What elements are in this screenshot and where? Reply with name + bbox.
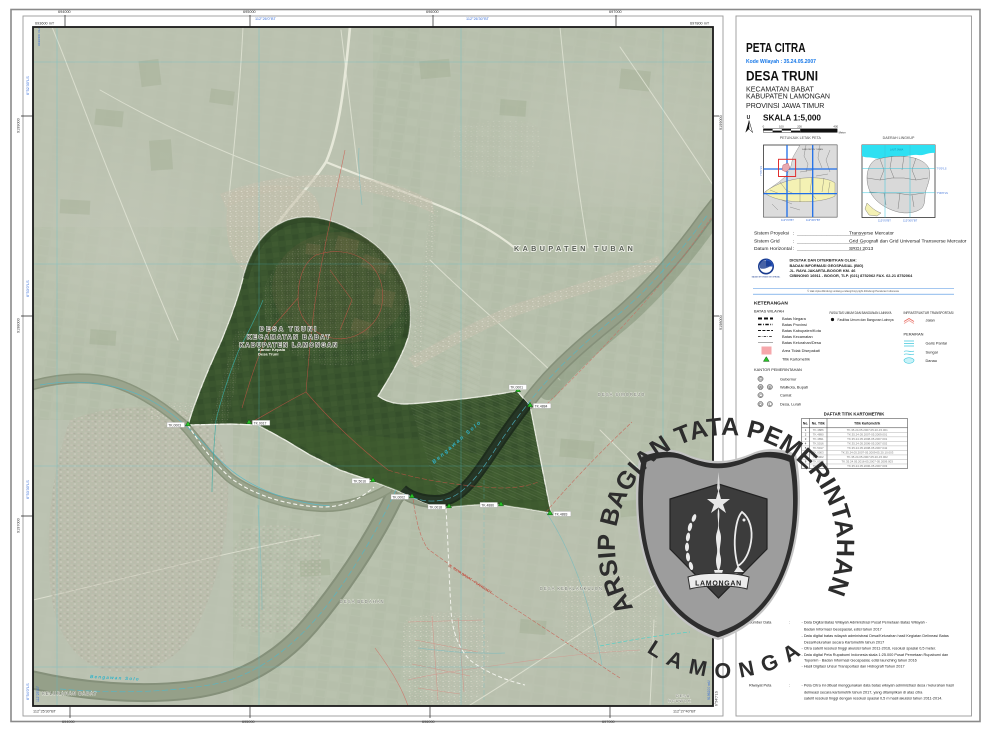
svg-text:DESA SIMOREJO: DESA SIMOREJO <box>598 392 645 397</box>
svg-text:Area Tidak Disepakati: Area Tidak Disepakati <box>782 348 820 353</box>
svg-text:Titik Kartometrik: Titik Kartometrik <box>782 357 810 362</box>
svg-text:DESA: DESA <box>676 694 690 698</box>
svg-text:TK.35.24.05.2008-05.2007.042: TK.35.24.05.2008-05.2007.042 <box>847 446 887 450</box>
svg-text:112°25'30"BT: 112°25'30"BT <box>33 710 57 714</box>
svg-text:6°54'0"LS: 6°54'0"LS <box>26 683 30 700</box>
svg-text:TK.4891: TK.4891 <box>813 437 824 441</box>
svg-text:PETUNJUK LETAK PETA: PETUNJUK LETAK PETA <box>780 136 822 140</box>
svg-text:7°0'0"LS: 7°0'0"LS <box>937 166 947 170</box>
svg-text:100: 100 <box>779 124 784 128</box>
svg-text:delineasi secara kartometrik t: delineasi secara kartometrik tahun 2017,… <box>804 691 923 695</box>
svg-text:TK.4884: TK.4884 <box>535 404 548 408</box>
svg-text::: : <box>793 239 794 244</box>
svg-text:694000: 694000 <box>62 720 75 724</box>
svg-text:KABUPATEN TUBAN: KABUPATEN TUBAN <box>514 244 636 253</box>
svg-text::: : <box>789 684 790 688</box>
svg-text:Batas Kelurahan/Desa: Batas Kelurahan/Desa <box>782 340 822 345</box>
svg-text:112°30'0"BT: 112°30'0"BT <box>806 218 821 222</box>
svg-text:696000: 696000 <box>422 720 435 724</box>
svg-text:NGUWOK: NGUWOK <box>668 699 692 703</box>
svg-text:Batas Negara: Batas Negara <box>782 316 807 321</box>
svg-text:697000: 697000 <box>609 10 622 14</box>
svg-text:Toponim - Badan Informasi Geos: Toponim - Badan Informasi Geospasial, ed… <box>804 658 917 662</box>
svg-text:TK.35.24.05.2006-05.2007.002: TK.35.24.05.2006-05.2007.002 <box>847 442 887 446</box>
svg-text:TK.0018: TK.0018 <box>429 505 442 509</box>
svg-text:697000: 697000 <box>602 720 615 724</box>
svg-text:DESA BEDAHAN: DESA BEDAHAN <box>340 599 385 604</box>
svg-text:- Data Digital Batas Wilayah A: - Data Digital Batas Wilayah Administras… <box>802 621 928 625</box>
svg-text:PERAIRAN: PERAIRAN <box>904 332 924 337</box>
svg-text:Fasilitas Umum dan Bangunan La: Fasilitas Umum dan Bangunan Lainnya <box>838 318 895 322</box>
svg-text:Batas Kecamatan: Batas Kecamatan <box>782 334 813 339</box>
svg-text:PROVINSI JAWA TIMUR: PROVINSI JAWA TIMUR <box>746 101 824 110</box>
svg-text:Camat: Camat <box>780 393 792 398</box>
svg-text:CIBINONG 16911 - BOGOR, TLP. (: CIBINONG 16911 - BOGOR, TLP. (021) 87520… <box>790 273 914 278</box>
svg-text:DAFTAR TITIK KARTOMETRIK: DAFTAR TITIK KARTOMETRIK <box>824 411 885 416</box>
svg-text:U: U <box>747 115 751 121</box>
svg-text:Sistem Proyeksi: Sistem Proyeksi <box>754 231 789 237</box>
svg-text:LAUT JAWA: LAUT JAWA <box>890 149 904 152</box>
svg-text:KABUPATEN LAMONGAN: KABUPATEN LAMONGAN <box>240 343 339 349</box>
svg-text:TK.0003: TK.0003 <box>168 423 181 427</box>
svg-text:- Hasil Digitasi Unsur Transpo: - Hasil Digitasi Unsur Transportasi dan … <box>802 664 905 668</box>
svg-text:TK.5016: TK.5016 <box>813 442 824 446</box>
svg-text:TK.4886: TK.4886 <box>481 503 494 507</box>
svg-text:- Data digital Peta Rupabumi I: - Data digital Peta Rupabumi Indonesia s… <box>802 653 949 657</box>
svg-text:KANTOR PEMERINTAHAN: KANTOR PEMERINTAHAN <box>754 367 802 372</box>
svg-text::: : <box>789 621 790 625</box>
svg-text:693600 mT: 693600 mT <box>35 22 55 26</box>
svg-text:Riwayat Peta: Riwayat Peta <box>749 684 772 688</box>
svg-text:112°25'30": 112°25'30" <box>36 685 40 702</box>
svg-text:DAERAH LINGKUP: DAERAH LINGKUP <box>883 136 915 140</box>
svg-text:- Peta Citra ini dibuat menggu: - Peta Citra ini dibuat menggunakan data… <box>802 684 955 688</box>
svg-text:KETERANGAN: KETERANGAN <box>754 301 788 307</box>
svg-text:400: 400 <box>833 124 838 128</box>
svg-text:Badan Informasi Geospasial, ed: Badan Informasi Geospasial, edisi tahun … <box>804 628 882 632</box>
svg-text:SRGI 2013: SRGI 2013 <box>849 246 873 252</box>
svg-text:Danau: Danau <box>926 358 937 363</box>
svg-text:Transverse Mercator: Transverse Mercator <box>849 231 894 237</box>
svg-text:9199000: 9199000 <box>719 115 723 130</box>
svg-text:PETA CITRA: PETA CITRA <box>746 41 806 55</box>
svg-text:TK.5016: TK.5016 <box>353 479 366 483</box>
svg-text:DESA TRUNI: DESA TRUNI <box>260 327 318 333</box>
svg-text:BADAN INFORMASI GEOSPASIAL: BADAN INFORMASI GEOSPASIAL <box>752 276 781 279</box>
svg-text:112°0'0"BT: 112°0'0"BT <box>781 218 794 222</box>
svg-text:Jalan: Jalan <box>926 317 935 322</box>
svg-text:INFRASTRUKTUR TRANSPORTASI: INFRASTRUKTUR TRANSPORTASI <box>904 311 954 315</box>
svg-text:Grid Geografi dan Grid Univers: Grid Geografi dan Grid Universal Transve… <box>849 238 967 244</box>
svg-text:- Citra satelit resolusi tingg: - Citra satelit resolusi tinggi akuisisi… <box>802 647 937 651</box>
svg-text:Desa/Kelurahan secara Kartomet: Desa/Kelurahan secara Kartometrik tahun … <box>804 641 884 645</box>
svg-text:LAMONGAN: LAMONGAN <box>695 581 742 588</box>
svg-text:DESA KEBALANKULON: DESA KEBALANKULON <box>540 586 603 591</box>
svg-text:Meter: Meter <box>839 130 846 134</box>
svg-text:No.: No. <box>803 422 808 426</box>
svg-text:200: 200 <box>797 124 802 128</box>
svg-text:Walikota, Bupati: Walikota, Bupati <box>780 385 808 390</box>
svg-text:TK.4890: TK.4890 <box>813 433 824 437</box>
svg-text:Batas Provinsi: Batas Provinsi <box>782 322 807 327</box>
svg-text:Garis Pantai: Garis Pantai <box>926 341 948 346</box>
svg-text:112°27'40"BT: 112°27'40"BT <box>673 710 697 714</box>
svg-text:Datum Horizontal: Datum Horizontal <box>754 246 792 252</box>
svg-text:112°0'0"BT: 112°0'0"BT <box>878 218 891 222</box>
svg-text:© Hak cipta dilindungi undang-: © Hak cipta dilindungi undang-undang/Cop… <box>807 289 899 293</box>
svg-text:695000: 695000 <box>242 720 255 724</box>
svg-text:DESA TRUNI: DESA TRUNI <box>746 69 818 84</box>
svg-text:696000: 696000 <box>426 10 439 14</box>
svg-text:Batas Kabupaten/Kota: Batas Kabupaten/Kota <box>782 328 822 333</box>
svg-text:TK.35.24.05.2007-05.2009-05.20: TK.35.24.05.2007-05.2009-05.20.10.003 <box>841 451 894 455</box>
svg-text:- Data digital batas wilayah a: - Data digital batas wilayah administras… <box>802 634 949 638</box>
svg-text:TK.0017: TK.0017 <box>254 421 267 425</box>
svg-text:112°30'0"BT: 112°30'0"BT <box>903 218 918 222</box>
svg-text:TK.4886: TK.4886 <box>813 428 824 432</box>
svg-text:112°26'0"BT: 112°26'0"BT <box>255 17 277 21</box>
svg-text::: : <box>793 232 794 237</box>
svg-text:7°30'0"LS: 7°30'0"LS <box>937 191 949 195</box>
svg-text::: : <box>793 247 794 252</box>
svg-text:No. Titik: No. Titik <box>812 422 825 426</box>
svg-text:TK.4883: TK.4883 <box>555 512 568 516</box>
svg-text:BATAS WILAYAH: BATAS WILAYAH <box>754 308 784 313</box>
svg-text:Gubernur: Gubernur <box>780 376 797 381</box>
svg-text:6°53'0"LS: 6°53'0"LS <box>26 280 30 297</box>
svg-text:9198000: 9198000 <box>719 315 723 330</box>
svg-text:Desa Truni: Desa Truni <box>258 352 278 357</box>
svg-text:Titik Kartometrik: Titik Kartometrik <box>854 422 880 426</box>
svg-text:TK.0001: TK.0001 <box>510 386 523 390</box>
svg-text:SKALA 1:5,000: SKALA 1:5,000 <box>763 114 821 123</box>
svg-text:Sungai: Sungai <box>926 350 938 355</box>
svg-text:FASILITAS UMUM DAN BANGUNAN LA: FASILITAS UMUM DAN BANGUNAN LAINNYA <box>830 311 892 315</box>
svg-text:KECAMATAN BABAT: KECAMATAN BABAT <box>247 335 331 341</box>
svg-text:KABUPATEN TUBAN: KABUPATEN TUBAN <box>802 148 823 151</box>
svg-text:TK.35.24.05.2007-05.20-15.002: TK.35.24.05.2007-05.20-15.002 <box>847 455 888 459</box>
svg-text:Kode Wilayah : 35.24.05.2007: Kode Wilayah : 35.24.05.2007 <box>746 59 816 65</box>
svg-text:9199400 mU: 9199400 mU <box>37 28 41 46</box>
svg-text:TK.0002: TK.0002 <box>392 495 405 499</box>
svg-text:G: G <box>759 377 762 381</box>
svg-text:KABUPATEN LAMONGAN: KABUPATEN LAMONGAN <box>746 91 830 100</box>
svg-text:Sistem Grid: Sistem Grid <box>754 238 780 244</box>
svg-text:6°53'30"LS: 6°53'30"LS <box>26 480 30 499</box>
svg-text:TK.35.24.05.2016-05.2007-05.20: TK.35.24.05.2016-05.2007-05.2009.003 <box>841 460 893 464</box>
svg-text:KELURAHAN BABAT: KELURAHAN BABAT <box>42 691 97 696</box>
svg-text:L: L <box>769 402 771 406</box>
svg-text:9196200 mU: 9196200 mU <box>707 680 711 700</box>
svg-text:7°0'0"LS: 7°0'0"LS <box>759 166 763 176</box>
svg-text:694000: 694000 <box>58 10 71 14</box>
svg-text:9198000: 9198000 <box>17 318 21 333</box>
svg-text:9199000: 9199000 <box>17 118 21 133</box>
svg-text:112°26'30"BT: 112°26'30"BT <box>466 17 490 21</box>
svg-text:6°54'0"LS: 6°54'0"LS <box>715 690 719 706</box>
svg-text:TK.35.24.05.2007-05.20-15.001: TK.35.24.05.2007-05.20-15.001 <box>847 428 888 432</box>
svg-text:Desa, Lurah: Desa, Lurah <box>780 402 801 407</box>
svg-text:697800 mT: 697800 mT <box>690 22 710 26</box>
svg-text:TK.35.24.05.2007-05.2009.001: TK.35.24.05.2007-05.2009.001 <box>847 433 887 437</box>
svg-text:satelit resolusi tinggi dengan: satelit resolusi tinggi dengan resolusi … <box>804 697 942 701</box>
svg-text:695000: 695000 <box>243 10 256 14</box>
svg-text:TK.35.24.05.2008-05.2007.001: TK.35.24.05.2008-05.2007.001 <box>847 437 887 441</box>
svg-text:9197000: 9197000 <box>17 518 21 533</box>
svg-text:TK.35.24.05.2006-05.2007.003: TK.35.24.05.2006-05.2007.003 <box>847 464 887 468</box>
svg-text:6°52'30"LS: 6°52'30"LS <box>26 76 30 95</box>
